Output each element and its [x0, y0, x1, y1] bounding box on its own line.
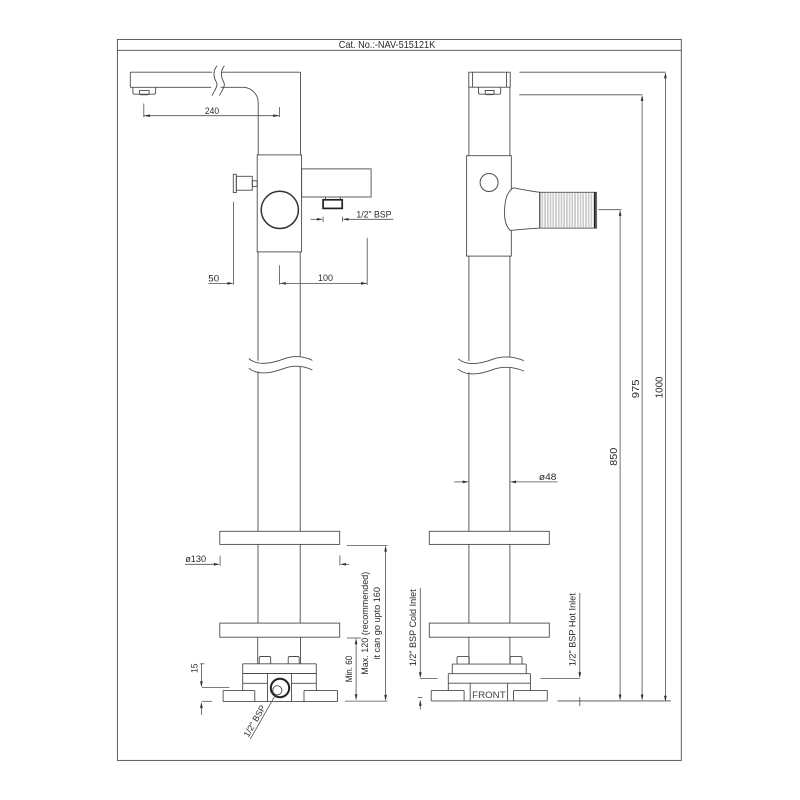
svg-text:ø48: ø48 — [539, 472, 557, 483]
svg-text:100: 100 — [318, 273, 333, 283]
svg-text:975: 975 — [630, 379, 642, 398]
svg-text:ø130: ø130 — [185, 554, 206, 564]
svg-text:1/2" BSP Cold Inlet: 1/2" BSP Cold Inlet — [408, 589, 418, 666]
svg-text:Max. 120 (recommended): Max. 120 (recommended) — [360, 572, 370, 675]
svg-text:240: 240 — [205, 106, 219, 116]
svg-text:1/2" BSP Hot Inlet: 1/2" BSP Hot Inlet — [567, 593, 577, 666]
svg-text:FRONT: FRONT — [472, 690, 506, 701]
svg-text:it can go upto 160: it can go upto 160 — [372, 587, 382, 660]
svg-text:1000: 1000 — [655, 376, 666, 398]
svg-text:850: 850 — [608, 448, 620, 466]
svg-text:50: 50 — [208, 274, 219, 284]
svg-text:15: 15 — [190, 664, 200, 673]
svg-text:1/2" BSP: 1/2" BSP — [356, 209, 391, 219]
svg-text:Min. 60: Min. 60 — [344, 656, 354, 683]
svg-text:Cat. No.:-NAV-515121K: Cat. No.:-NAV-515121K — [339, 40, 436, 51]
